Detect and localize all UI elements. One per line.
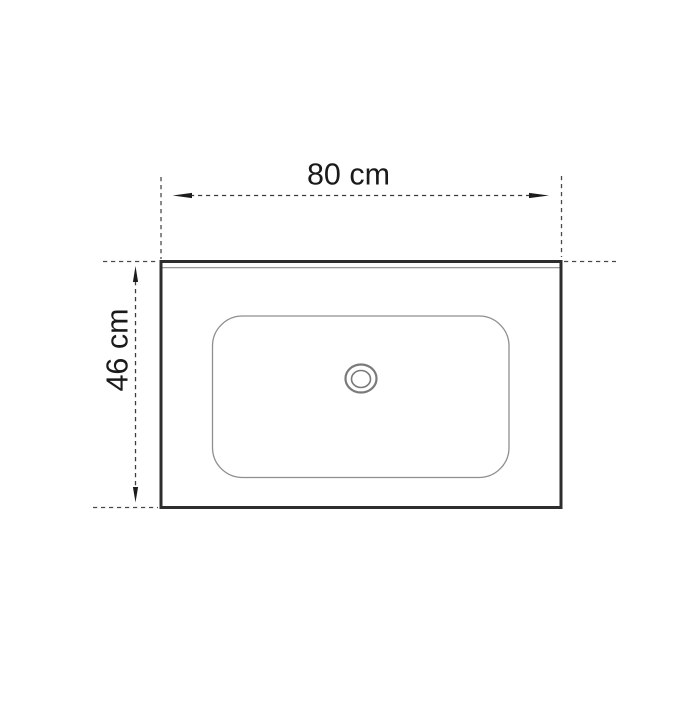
- svg-text:46 cm: 46 cm: [100, 308, 134, 391]
- svg-text:80 cm: 80 cm: [307, 158, 390, 192]
